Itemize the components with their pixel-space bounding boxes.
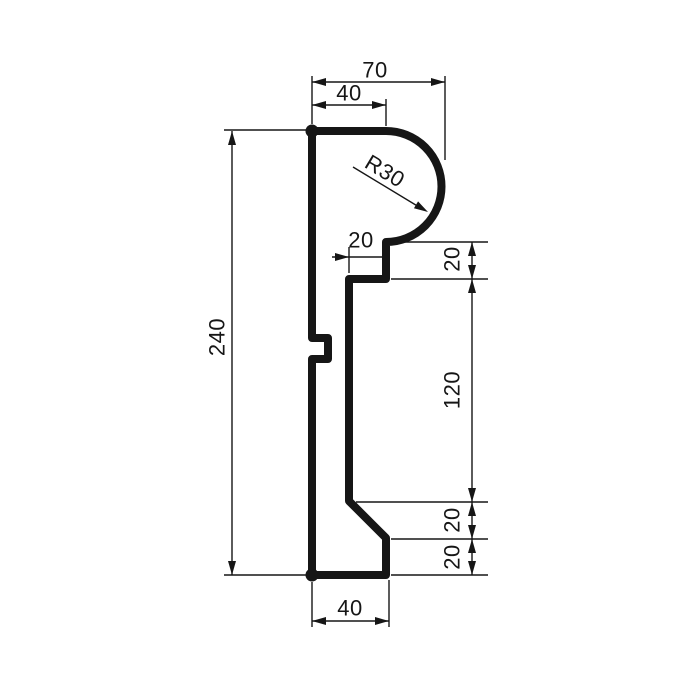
drawing-canvas: 7040R302020120202024040 bbox=[0, 0, 686, 686]
dimension-total-height-240: 240 bbox=[205, 130, 307, 575]
dimension-arrow bbox=[468, 525, 476, 539]
dimension-label: 20 bbox=[440, 507, 465, 532]
technical-drawing: 7040R302020120202024040 bbox=[0, 0, 686, 686]
dimension-step-width-20: 20 bbox=[332, 228, 384, 274]
dimension-label: 120 bbox=[440, 371, 465, 409]
dimension-label: 20 bbox=[440, 246, 465, 271]
dimension-height-120: 120 bbox=[356, 279, 488, 502]
corner-dot bbox=[306, 125, 319, 138]
dimension-width-bottom-40: 40 bbox=[312, 580, 389, 627]
dimension-arrow bbox=[335, 253, 349, 261]
dimension-arrow bbox=[468, 502, 476, 516]
dimension-arrow bbox=[372, 101, 386, 109]
dimension-label: 40 bbox=[336, 81, 361, 106]
dimension-label: 40 bbox=[337, 596, 362, 621]
dimension-arrow bbox=[228, 131, 236, 145]
dimension-label: 70 bbox=[362, 58, 387, 83]
dimension-base-height-20: 20 bbox=[391, 539, 488, 575]
dimension-arrow bbox=[431, 78, 445, 86]
dimension-arrow bbox=[468, 488, 476, 502]
dimension-arrow bbox=[375, 617, 389, 625]
dimension-arrow bbox=[414, 201, 428, 212]
dimension-arrow bbox=[468, 242, 476, 256]
dimension-arrow bbox=[468, 279, 476, 293]
dimension-step-height-20: 20 bbox=[391, 242, 488, 279]
profile-outline bbox=[312, 131, 442, 575]
dimension-radius-R30: R30 bbox=[353, 150, 428, 212]
dimension-arrow bbox=[468, 265, 476, 279]
corner-dot bbox=[306, 569, 319, 582]
dimension-arrow bbox=[228, 561, 236, 575]
dimension-arrow bbox=[312, 78, 326, 86]
dimension-label: 20 bbox=[440, 544, 465, 569]
dimension-arrow bbox=[312, 101, 326, 109]
dimension-arrow bbox=[312, 617, 326, 625]
dimension-arrow bbox=[468, 539, 476, 553]
dimension-width-top-40: 40 bbox=[312, 81, 386, 127]
dimension-label: 240 bbox=[205, 318, 230, 356]
dimension-arrow bbox=[468, 561, 476, 575]
dimension-label: 20 bbox=[348, 228, 373, 253]
dimension-bevel-height-20: 20 bbox=[391, 502, 488, 539]
